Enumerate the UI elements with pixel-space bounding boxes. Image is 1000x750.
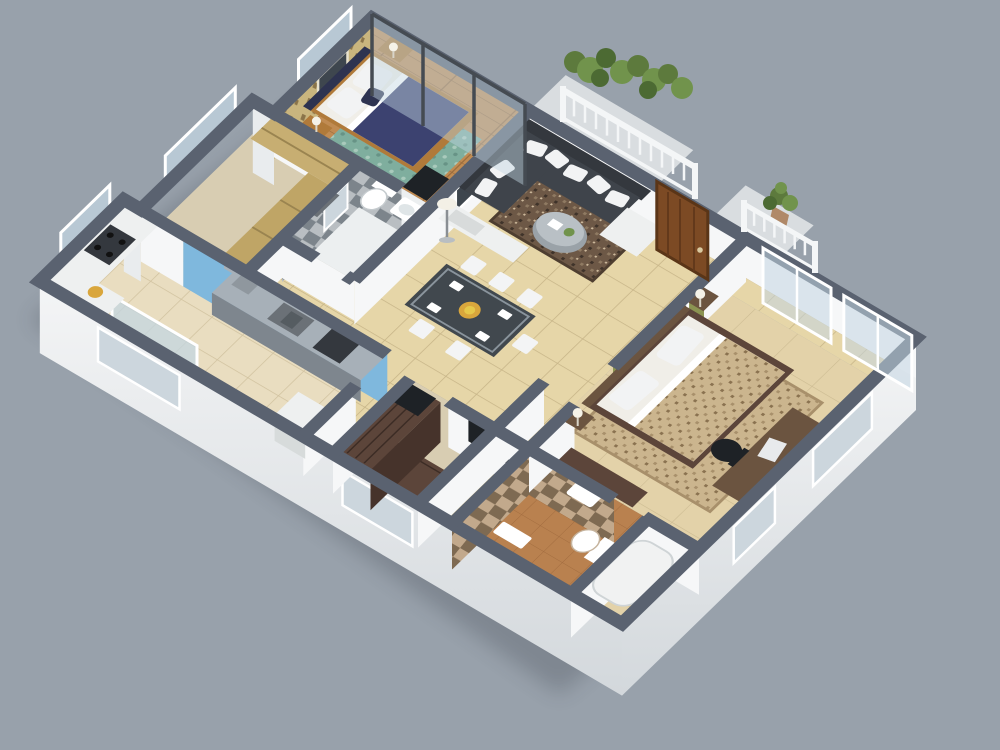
door-handle bbox=[697, 247, 703, 253]
floor-plan-stage bbox=[0, 0, 1000, 750]
floor-plan-render bbox=[0, 0, 1000, 750]
